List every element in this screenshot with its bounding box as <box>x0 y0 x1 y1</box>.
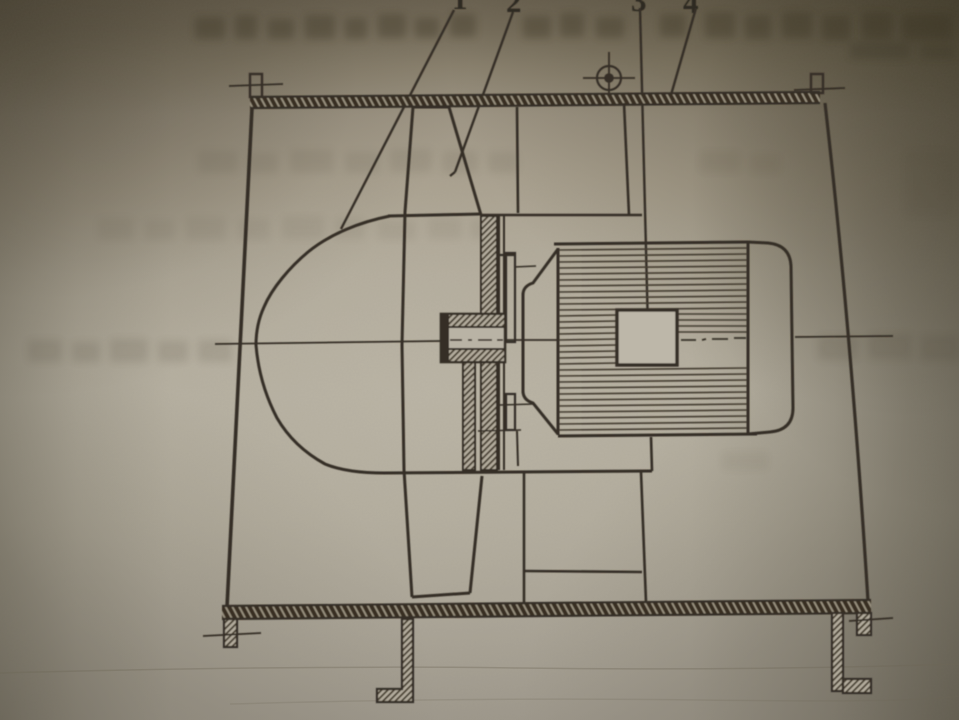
svg-text:3: 3 <box>631 0 647 18</box>
svg-text:2: 2 <box>506 0 522 19</box>
svg-text:1: 1 <box>452 0 468 16</box>
